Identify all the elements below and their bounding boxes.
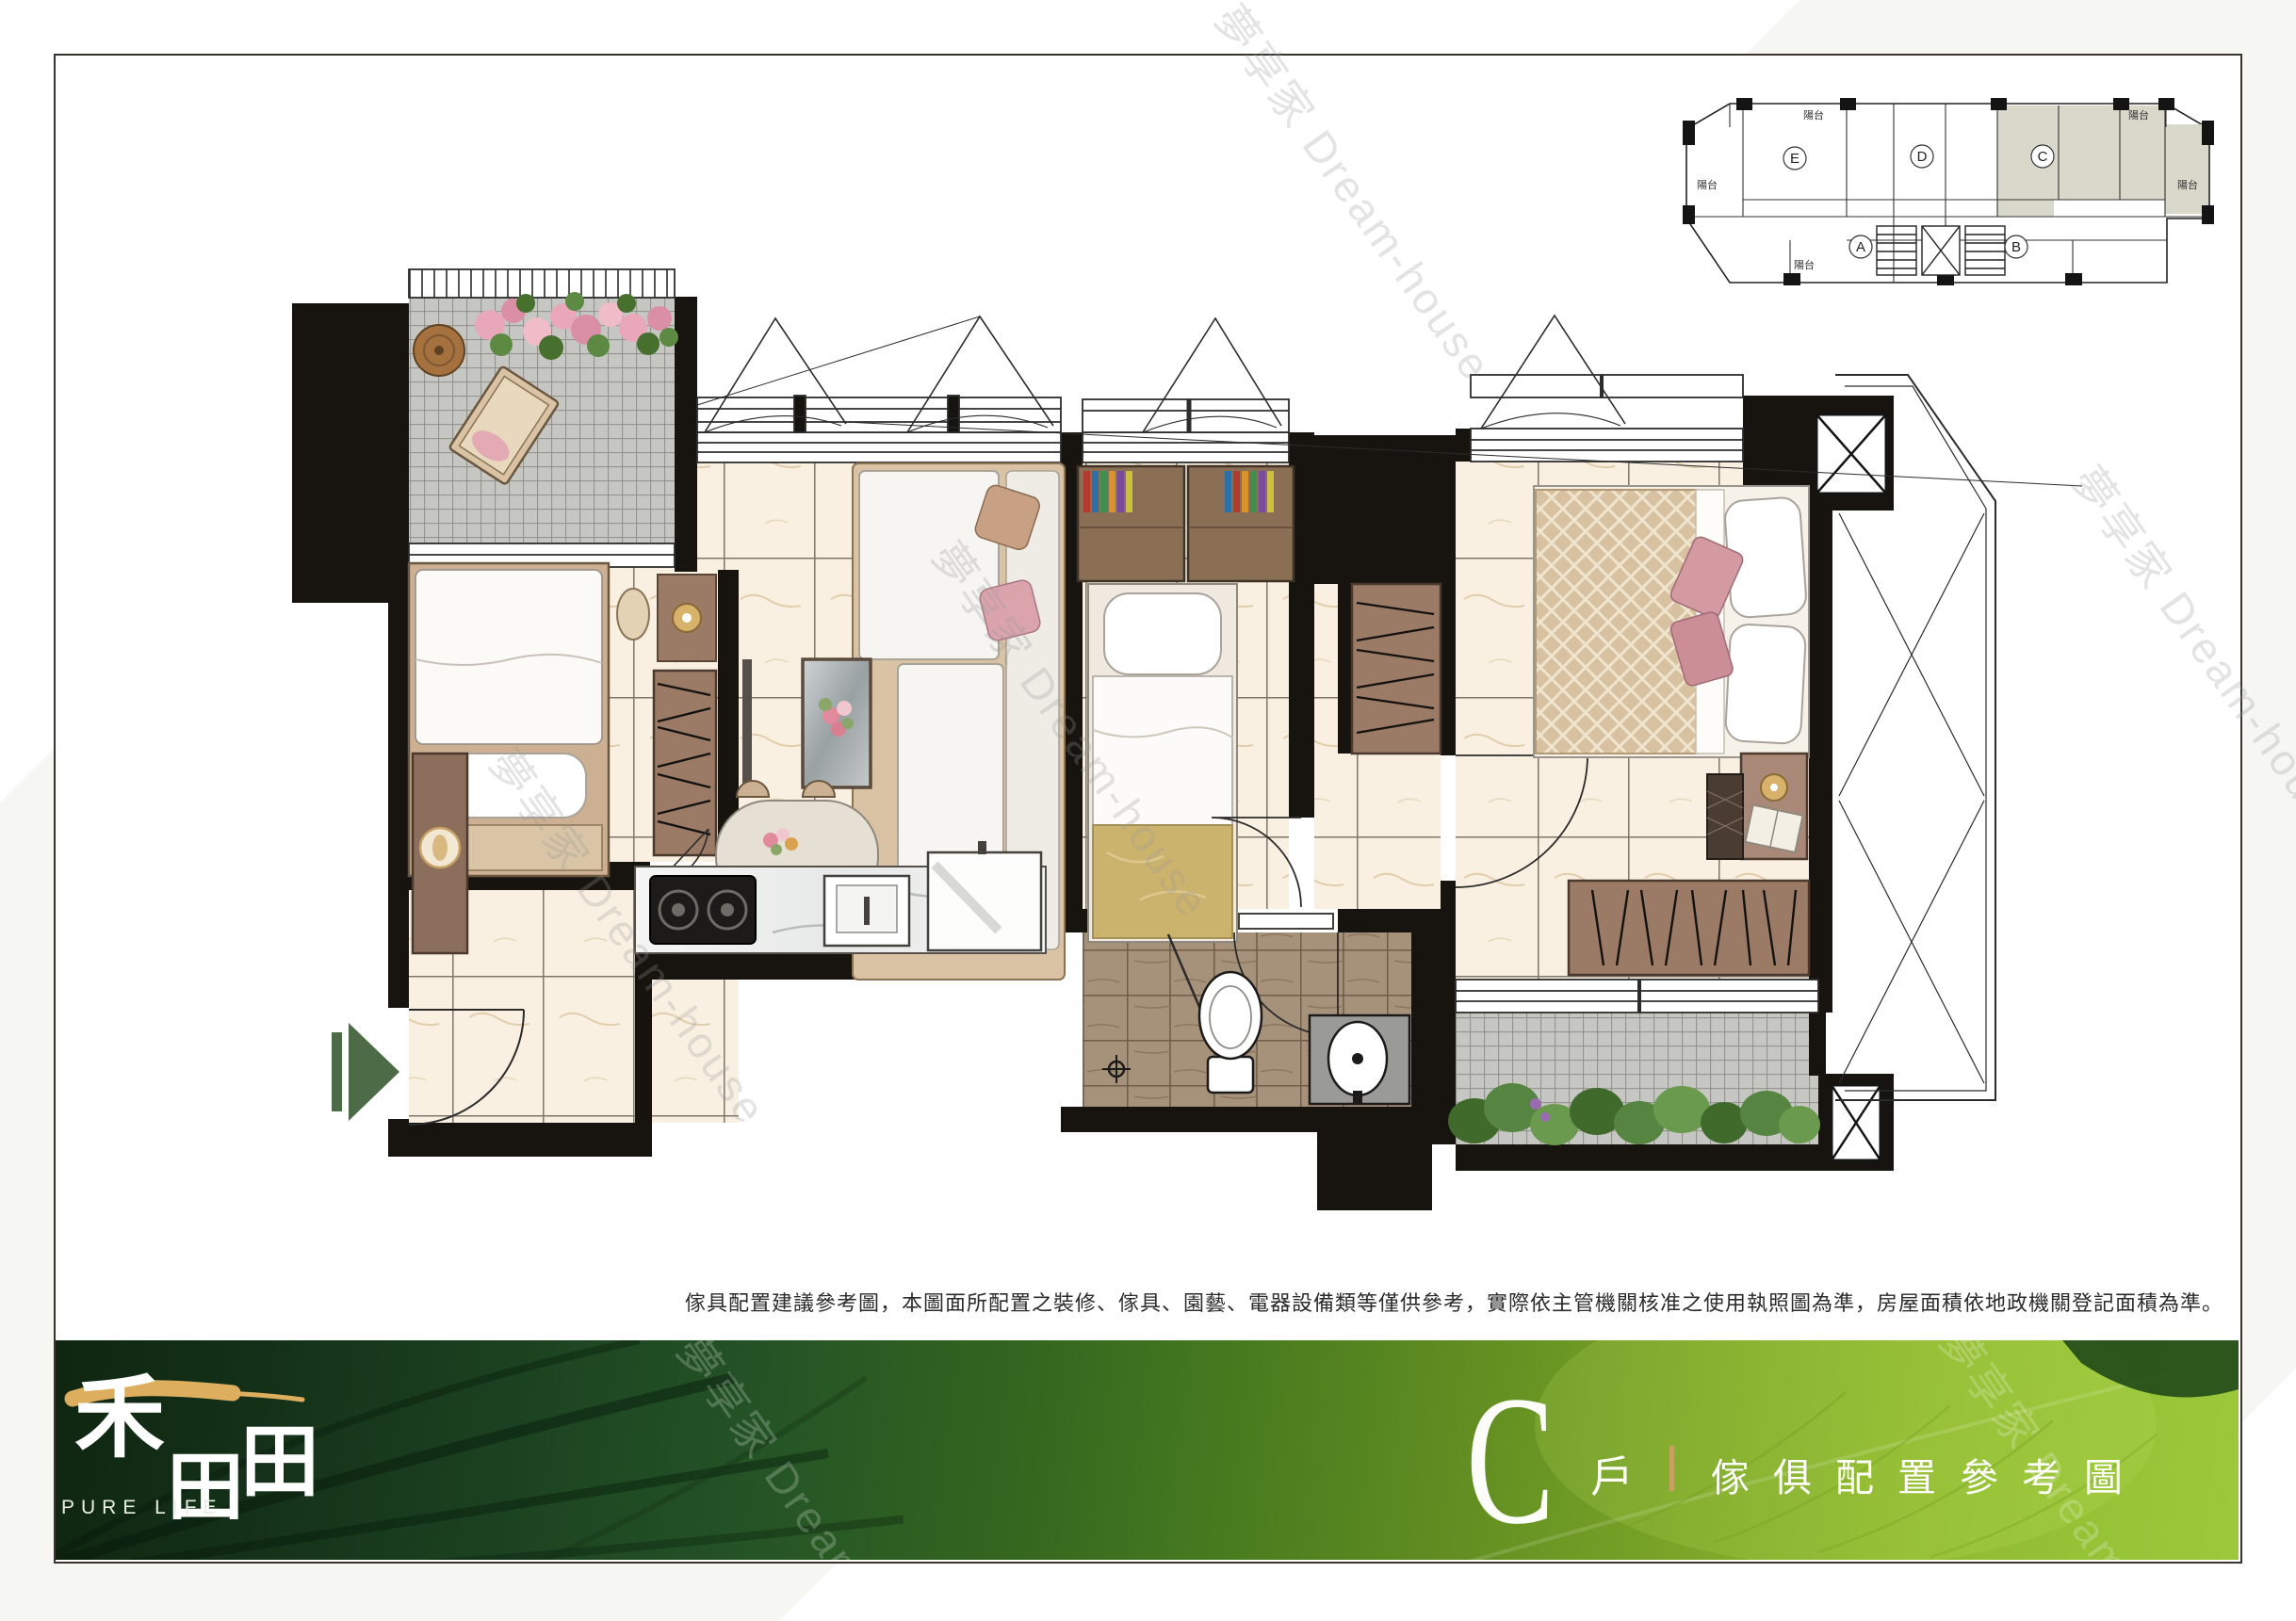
banner-title: 傢俱配置參考圖 <box>1711 1446 2146 1502</box>
tv-panel <box>742 659 752 784</box>
toilet <box>1199 972 1262 1093</box>
svg-text:陽台: 陽台 <box>2128 108 2149 122</box>
disclaimer-text: 傢具配置建議參考圖，本圖面所配置之裝修、傢具、園藝、電器設備類等僅供參考，實際依… <box>528 1287 2223 1317</box>
key-plan: E D C A B 陽台 陽台 陽台 陽台 陽台 <box>1672 80 2219 306</box>
svg-text:陽台: 陽台 <box>1803 108 1824 122</box>
gold-divider <box>1669 1446 1674 1491</box>
brand-logo: 禾 田 田 PURE LIFE <box>56 1340 357 1519</box>
svg-text:陽台: 陽台 <box>2177 178 2198 191</box>
logo-tagline: PURE LIFE <box>61 1497 223 1518</box>
master-wardrobe <box>1569 881 1809 975</box>
svg-text:D: D <box>1917 149 1928 165</box>
master-bedroom <box>1534 486 1809 975</box>
page: E D C A B 陽台 陽台 陽台 陽台 陽台 夢享家 Dream-house… <box>0 0 2296 1621</box>
bed2-coverlet <box>1093 825 1232 938</box>
balcony-railing <box>409 269 675 298</box>
bookshelf-right <box>1188 466 1294 581</box>
svg-text:C: C <box>2038 149 2048 165</box>
sofa-chaise <box>859 471 999 659</box>
unit-suffix: 戶 <box>1590 1443 1634 1505</box>
logo-char-he: 禾 <box>74 1368 165 1468</box>
logo-char-tian2: 田 <box>240 1418 319 1506</box>
bench <box>1707 774 1743 859</box>
double-bed-plaid <box>1536 490 1698 754</box>
unit-letter: C <box>1466 1369 1555 1553</box>
floor-plan <box>236 226 2120 1243</box>
bed2-sheet <box>1093 676 1232 825</box>
dresser-stool <box>617 589 649 640</box>
svg-text:陽台: 陽台 <box>1794 258 1815 271</box>
stove <box>650 876 756 944</box>
svg-text:E: E <box>1790 151 1799 167</box>
svg-text:B: B <box>2011 239 2021 255</box>
bed2-pillow <box>1104 593 1221 674</box>
svg-text:陽台: 陽台 <box>1697 178 1718 191</box>
bathroom-door-panel <box>1239 914 1333 929</box>
svg-text:A: A <box>1856 239 1865 255</box>
brand-banner: 禾 田 田 PURE LIFE C 戶 傢俱配置參考圖 夢享家 Dream-ho… <box>56 1340 2239 1560</box>
refrigerator <box>928 852 1041 950</box>
pillow2 <box>1725 624 1806 744</box>
vanity-sink <box>1310 1015 1409 1104</box>
